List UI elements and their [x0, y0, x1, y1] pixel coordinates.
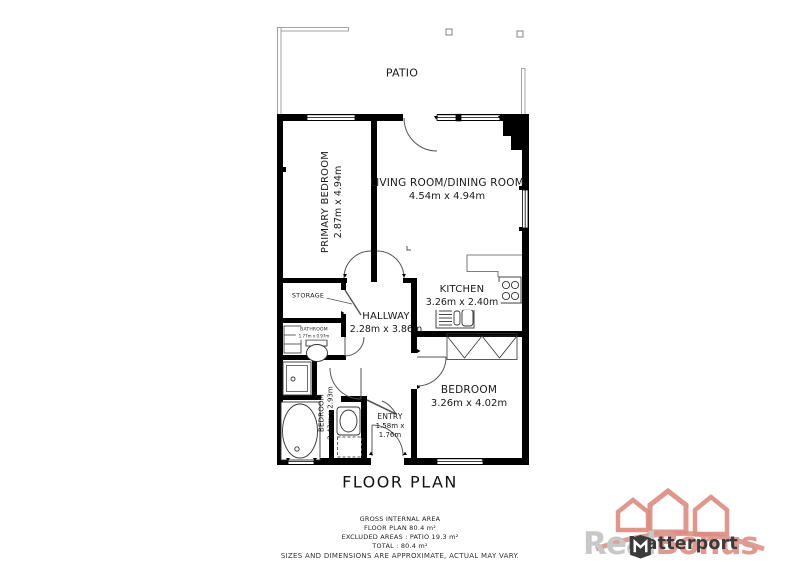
- room-label-bathroom: BATHROOM 1.77m x 0.97m: [296, 327, 333, 340]
- storage-name: STORAGE: [292, 292, 324, 301]
- living-dining-name: LIVING ROOM/DINING ROOM: [370, 176, 524, 190]
- bedroom-small-name: BEDROOM: [318, 386, 327, 439]
- room-label-primary-bedroom: PRIMARY BEDROOM 2.87m x 4.94m: [319, 151, 345, 253]
- entry-dims-line2: 1.76m: [376, 431, 405, 440]
- matterport-icon: [628, 534, 653, 559]
- bathroom-dims: 1.77m x 0.97m: [299, 333, 330, 338]
- room-label-kitchen: KITCHEN 3.26m x 2.40m: [423, 282, 501, 310]
- room-label-bedroom: BEDROOM 3.26m x 4.02m: [431, 383, 507, 411]
- living-dining-dims: 4.54m x 4.94m: [370, 190, 524, 204]
- bedroom-small-dims: 2.43m x 2.93m: [327, 386, 336, 439]
- room-label-entry: ENTRY 1.58m x 1.76m: [376, 412, 405, 440]
- page-title: FLOOR PLAN: [342, 473, 458, 492]
- entry-dims-line1: 1.58m x: [376, 422, 405, 431]
- kitchen-dims: 3.26m x 2.40m: [426, 296, 498, 309]
- summary-excluded-areas: EXCLUDED AREAS : PATIO 19.3 m²: [342, 533, 459, 541]
- patio-name: PATIO: [386, 67, 418, 82]
- room-label-hallway: HALLWAY 2.28m x 3.86m: [350, 310, 422, 336]
- room-label-living-dining: LIVING ROOM/DINING ROOM 4.54m x 4.94m: [370, 176, 524, 204]
- bedroom-dims: 3.26m x 4.02m: [431, 397, 507, 411]
- entry-name: ENTRY: [376, 412, 405, 422]
- primary-bedroom-dims: 2.87m x 4.94m: [332, 151, 345, 253]
- summary-total-area: TOTAL : 80.4 m²: [372, 542, 427, 550]
- closet-fixture: [447, 334, 517, 360]
- toilet-fixture: [306, 340, 328, 362]
- kitchen-name: KITCHEN: [426, 283, 498, 297]
- washbasin-fixture: [337, 407, 360, 435]
- room-label-bedroom-small: BEDROOM 2.43m x 2.93m: [318, 386, 337, 439]
- summary-disclaimer: SIZES AND DIMENSIONS ARE APPROXIMATE, AC…: [281, 552, 519, 560]
- bedroom-name: BEDROOM: [431, 383, 507, 397]
- hallway-dims: 2.28m x 3.86m: [350, 323, 422, 336]
- realestate-watermark: RealBonus Matterport: [583, 488, 800, 566]
- bathroom-name: BATHROOM: [299, 328, 330, 334]
- summary-gross-internal-area: GROSS INTERNAL AREA: [360, 515, 441, 523]
- room-label-storage: STORAGE: [289, 291, 327, 302]
- stove-fixture: [499, 277, 521, 303]
- room-label-patio: PATIO: [386, 67, 418, 82]
- floor-plan-page: PATIO PRIMARY BEDROOM 2.87m x 4.94m LIVI…: [0, 0, 800, 566]
- bathtub-fixture: [281, 402, 320, 460]
- appliance-space: [338, 437, 362, 457]
- shower-fixture: [283, 362, 311, 395]
- primary-bedroom-name: PRIMARY BEDROOM: [319, 151, 333, 253]
- summary-floor-plan-area: FLOOR PLAN 80.4 m²: [364, 524, 436, 532]
- matterport-logo: Matterport: [628, 534, 738, 554]
- hallway-name: HALLWAY: [350, 310, 422, 324]
